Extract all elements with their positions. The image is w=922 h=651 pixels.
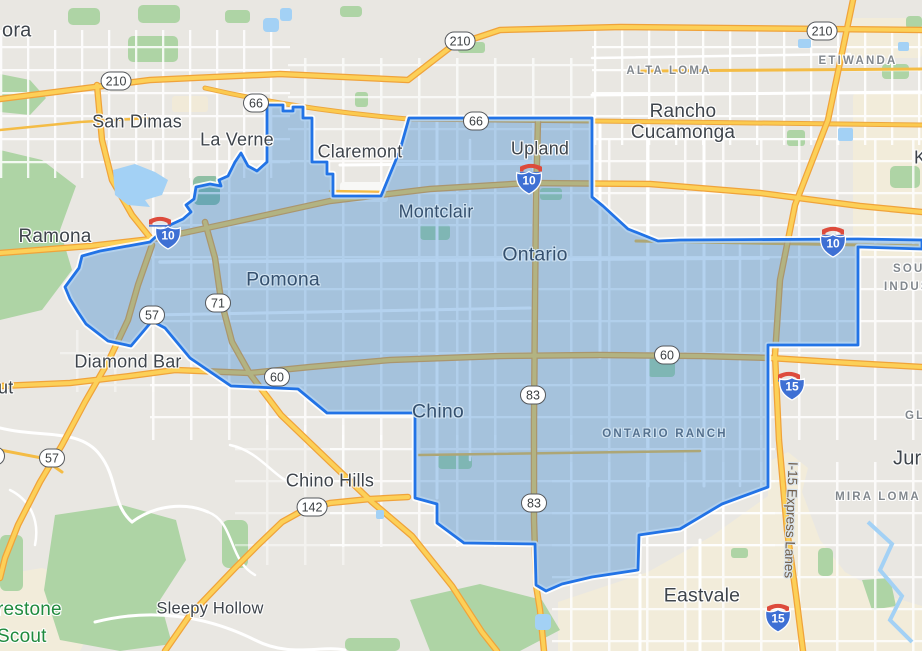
route-shield-210: 210 [807, 22, 838, 41]
district-label-alta-loma: ALTA LOMA [626, 65, 711, 77]
park-label-firestone-line1: restone [0, 599, 62, 621]
route-shield-57: 57 [39, 449, 65, 468]
city-label-claremont[interactable]: Claremont [318, 142, 403, 163]
city-label-east-partial: K [914, 148, 922, 169]
district-label-industrial-partial: INDUS [884, 281, 922, 293]
district-label-ontario-ranch: ONTARIO RANCH [602, 428, 728, 440]
interstate-shield-10: 10 [819, 233, 847, 258]
route-shield-66: 66 [463, 112, 489, 131]
city-label-ramona[interactable]: Ramona [18, 226, 91, 248]
map-canvas[interactable]: 210 210 210 66 66 57 57 71 60 60 60 83 8… [0, 0, 922, 651]
city-label-san-dimas[interactable]: San Dimas [92, 112, 182, 133]
city-label-chino-hills[interactable]: Chino Hills [286, 471, 374, 492]
interstate-shield-10: 10 [154, 225, 182, 250]
route-shield-71: 71 [205, 294, 231, 313]
city-label-ontario[interactable]: Ontario [502, 244, 567, 267]
city-label-chino[interactable]: Chino [412, 401, 464, 424]
route-shield-83: 83 [520, 386, 546, 405]
city-label-eastvale[interactable]: Eastvale [664, 585, 740, 608]
route-shield-210: 210 [101, 72, 132, 91]
interstate-shield-15: 15 [778, 376, 806, 401]
city-label-glendora-partial[interactable]: ora [2, 20, 32, 43]
district-label-mira-loma: MIRA LOMA [835, 491, 921, 503]
route-shield-210: 210 [445, 32, 476, 51]
district-label-etiwanda: ETIWANDA [819, 55, 898, 67]
city-label-montclair[interactable]: Montclair [399, 202, 474, 223]
route-shield-66: 66 [243, 94, 269, 113]
city-label-sleepy-hollow[interactable]: Sleepy Hollow [156, 600, 263, 619]
park-label-firestone-line2: Scout [0, 626, 47, 648]
route-shield-83: 83 [521, 494, 547, 513]
city-label-rancho-cucamonga[interactable]: Rancho Cucamonga [621, 102, 746, 144]
city-label-diamond-bar[interactable]: Diamond Bar [74, 352, 181, 373]
route-shield-142: 142 [297, 498, 328, 517]
city-label-jurupa-partial[interactable]: Jur [893, 448, 921, 471]
city-label-walnut-partial[interactable]: ut [0, 378, 13, 399]
city-label-upland[interactable]: Upland [511, 139, 569, 160]
city-label-la-verne[interactable]: La Verne [200, 130, 274, 151]
interstate-shield-10: 10 [515, 170, 543, 195]
district-label-gl-partial: GL [905, 410, 922, 422]
route-shield-57: 57 [139, 306, 165, 325]
route-shield-60: 60 [264, 368, 290, 387]
city-label-pomona[interactable]: Pomona [246, 269, 320, 292]
district-label-south-partial: SOU [893, 263, 922, 275]
interstate-shield-15: 15 [764, 608, 792, 633]
route-shield-60: 60 [654, 346, 680, 365]
